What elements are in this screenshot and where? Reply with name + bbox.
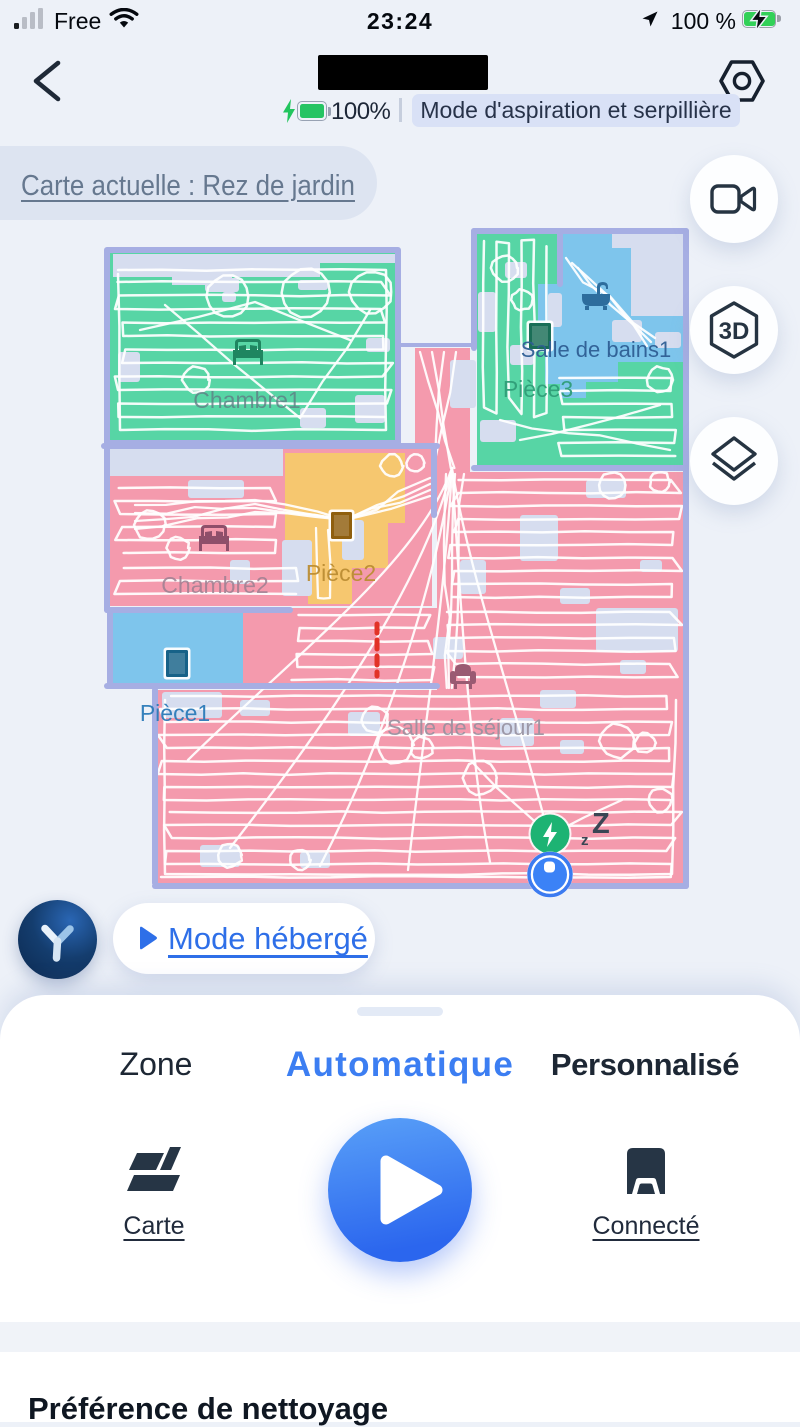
svg-text:Pièce1: Pièce1 — [140, 700, 210, 726]
svg-text:Chambre2: Chambre2 — [161, 572, 268, 598]
svg-text:Z: Z — [592, 808, 610, 840]
svg-text:Chambre1: Chambre1 — [193, 387, 300, 413]
svg-text:Salle de séjour1: Salle de séjour1 — [387, 715, 545, 740]
svg-text:Pièce3: Pièce3 — [503, 376, 573, 402]
svg-text:Salle de bains1: Salle de bains1 — [521, 337, 671, 362]
svg-text:Pièce2: Pièce2 — [306, 560, 376, 586]
svg-text:z: z — [581, 832, 589, 849]
svg-text:3D: 3D — [719, 318, 750, 345]
